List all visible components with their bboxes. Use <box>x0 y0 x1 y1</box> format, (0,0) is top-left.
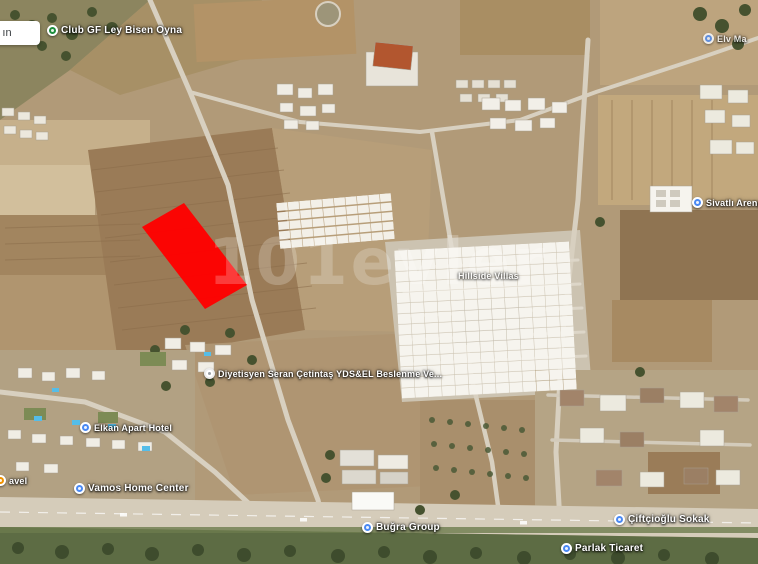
map-label-text: Diyetisyen Seran Çetintaş YDS&EL Beslenm… <box>218 369 442 379</box>
map-label-parlak-ticaret[interactable]: Parlak Ticaret <box>561 543 643 554</box>
map-label-text: Çiftçioğlu Sokak <box>628 514 710 525</box>
map-label-text: avel <box>9 476 27 486</box>
map-label-text: Sivatlı Areng <box>706 198 758 208</box>
white-place-icon <box>204 368 215 379</box>
map-label-club[interactable]: Club GF Ley Bisen Oyna <box>47 25 182 36</box>
cutoff-info-box[interactable]: ın <box>0 21 40 45</box>
blue-place-icon <box>80 422 91 433</box>
map-label-dietitian[interactable]: Diyetisyen Seran Çetintaş YDS&EL Beslenm… <box>204 368 442 379</box>
watermark: 101evler <box>208 226 548 300</box>
map-label-ciftcioglu-sokak[interactable]: Çiftçioğlu Sokak <box>614 514 710 525</box>
map-label-text: Parlak Ticaret <box>575 543 643 554</box>
satellite-map[interactable]: 101evler ın Club GF Ley Bisen Oyna Diyet… <box>0 0 758 564</box>
map-label-sivatli-cutoff[interactable]: Sivatlı Areng <box>692 197 758 208</box>
map-label-text: Club GF Ley Bisen Oyna <box>61 25 182 36</box>
map-label-bugra-group[interactable]: Buğra Group <box>362 522 440 533</box>
blue-place-icon <box>692 197 703 208</box>
map-label-text: Vamos Home Center <box>88 483 189 494</box>
map-label-hillside-villas[interactable]: Hillside Villas <box>458 271 519 281</box>
map-label-elkan[interactable]: Elkan Apart Hotel <box>80 422 172 433</box>
map-label-text: Elkan Apart Hotel <box>94 423 172 433</box>
green-place-icon <box>47 25 58 36</box>
blue-place-icon <box>561 543 572 554</box>
cutoff-info-text: ın <box>2 27 11 39</box>
map-label-elv-cutoff[interactable]: Elv Ma <box>703 33 747 44</box>
blue-place-icon <box>614 514 625 525</box>
map-label-travel-cutoff[interactable]: avel <box>0 475 27 486</box>
blue-place-icon <box>703 33 714 44</box>
orange-place-icon <box>0 475 6 486</box>
blue-place-icon <box>74 483 85 494</box>
map-label-vamos-home-center[interactable]: Vamos Home Center <box>74 483 189 494</box>
blue-place-icon <box>362 522 373 533</box>
map-label-text: Hillside Villas <box>458 271 519 281</box>
map-label-text: Buğra Group <box>376 522 440 533</box>
map-label-text: Elv Ma <box>717 34 747 44</box>
